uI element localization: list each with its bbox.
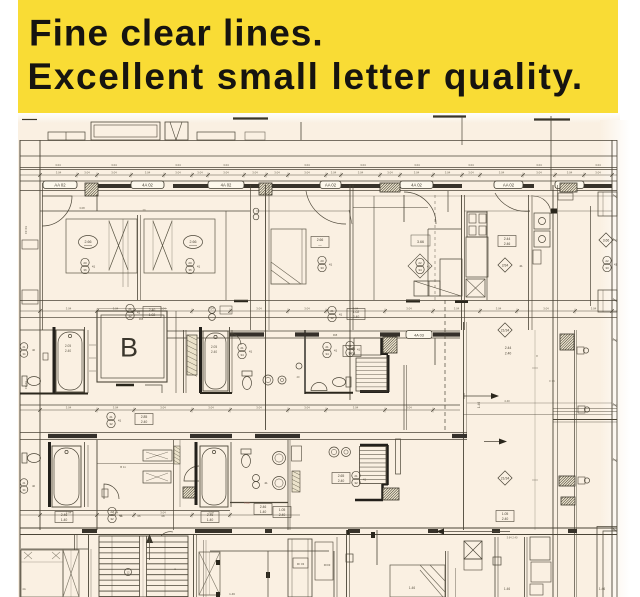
svg-text:12: 12 [126, 571, 130, 575]
svg-text:3.04: 3.04 [468, 163, 474, 167]
svg-text:1.40: 1.40 [260, 510, 267, 514]
svg-text:1.05: 1.05 [279, 508, 286, 512]
svg-text:1.40: 1.40 [207, 518, 214, 522]
svg-text:2.40: 2.40 [211, 350, 217, 354]
svg-text:41: 41 [264, 481, 268, 485]
svg-text:33: 33 [605, 266, 609, 270]
svg-text:1.46: 1.46 [599, 587, 605, 591]
svg-text:41: 41 [197, 265, 201, 269]
svg-text:41: 41 [118, 419, 122, 423]
svg-text:3.04: 3.04 [208, 406, 214, 410]
svg-text:21: 21 [325, 345, 329, 349]
svg-text:AA 02: AA 02 [325, 183, 337, 188]
svg-text:998: 998 [333, 333, 338, 337]
svg-text:3.04: 3.04 [274, 171, 280, 175]
svg-text:2.40: 2.40 [505, 352, 512, 356]
svg-text:3.04: 3.04 [468, 171, 474, 175]
svg-text:41: 41 [519, 264, 523, 268]
svg-text:41: 41 [92, 265, 96, 269]
svg-text:3.04: 3.04 [66, 511, 72, 515]
svg-text:FF03: FF03 [324, 563, 331, 567]
svg-text:3.04: 3.04 [591, 307, 597, 311]
svg-text:FF 03: FF 03 [24, 381, 28, 389]
svg-text:21/34: 21/34 [501, 476, 510, 480]
svg-text:3.04: 3.04 [252, 171, 258, 175]
svg-text:20: 20 [320, 259, 324, 263]
svg-text:40: 40 [32, 348, 36, 352]
svg-text:41: 41 [249, 350, 253, 354]
svg-text:Fine clear lines.: Fine clear lines. [29, 13, 324, 54]
svg-text:2.65: 2.65 [338, 474, 345, 478]
svg-text:1.05: 1.05 [502, 512, 509, 516]
svg-text:3.04: 3.04 [595, 171, 601, 175]
svg-text:3.04: 3.04 [223, 163, 229, 167]
svg-text:FF 03: FF 03 [24, 226, 28, 234]
svg-text:1.46: 1.46 [229, 592, 235, 596]
svg-text:FF 03: FF 03 [297, 562, 305, 566]
svg-text:3.04: 3.04 [111, 163, 117, 167]
svg-text:08: 08 [161, 514, 165, 518]
svg-text:3.04: 3.04 [414, 171, 420, 175]
svg-text:3.04: 3.04 [445, 171, 451, 175]
svg-text:2.44: 2.44 [504, 237, 511, 241]
svg-text:1.40: 1.40 [61, 518, 68, 522]
svg-text:34: 34 [418, 268, 422, 272]
svg-text:32: 32 [109, 422, 113, 426]
svg-text:3.04: 3.04 [113, 511, 119, 515]
svg-text:21: 21 [354, 474, 358, 478]
svg-text:2.05: 2.05 [211, 345, 217, 349]
svg-text:41: 41 [427, 265, 431, 269]
svg-text:21: 21 [330, 309, 334, 313]
svg-text:3.04: 3.04 [543, 307, 549, 311]
svg-text:3.04: 3.04 [66, 307, 72, 311]
svg-text:4A 02: 4A 02 [411, 183, 422, 188]
svg-text:2.46: 2.46 [260, 505, 267, 509]
svg-text:40: 40 [32, 484, 36, 488]
svg-text:34: 34 [240, 353, 244, 357]
svg-text:32: 32 [110, 517, 114, 521]
svg-text:Excellent small letter quality: Excellent small letter quality. [28, 56, 584, 97]
svg-text:2.05: 2.05 [65, 344, 71, 348]
svg-text:21: 21 [109, 415, 113, 419]
svg-text:32: 32 [348, 351, 352, 355]
svg-text:32: 32 [354, 481, 358, 485]
svg-text:41: 41 [357, 348, 361, 352]
svg-text:3.04: 3.04 [536, 163, 542, 167]
svg-text:998: 998 [139, 317, 144, 321]
svg-text:1.02: 1.02 [353, 310, 360, 314]
svg-text:3.04: 3.04 [304, 163, 310, 167]
svg-text:3.04: 3.04 [358, 171, 364, 175]
svg-text:3.04: 3.04 [223, 171, 229, 175]
svg-text:3.04: 3.04 [84, 171, 90, 175]
svg-text:32: 32 [330, 316, 334, 320]
svg-text:4.40: 4.40 [504, 399, 510, 403]
svg-text:3.04: 3.04 [145, 171, 151, 175]
svg-text:AA 02: AA 02 [503, 183, 515, 188]
svg-text:2.40: 2.40 [149, 308, 156, 312]
svg-text:3.04: 3.04 [304, 171, 310, 175]
svg-text:20: 20 [83, 261, 87, 265]
svg-text:22: 22 [418, 261, 422, 265]
svg-text:4A 02: 4A 02 [142, 183, 153, 188]
svg-text:41: 41 [334, 349, 338, 353]
svg-text:3.04: 3.04 [56, 171, 62, 175]
svg-text:3.08: 3.08 [79, 206, 85, 210]
svg-text:33: 33 [320, 266, 324, 270]
svg-text:1.46: 1.46 [504, 587, 510, 591]
svg-text:3.04: 3.04 [331, 171, 337, 175]
svg-text:3.64 2.40: 3.64 2.40 [507, 536, 518, 540]
svg-text:B 11: B 11 [120, 465, 126, 469]
svg-text:3.66: 3.66 [417, 240, 424, 244]
svg-text:F 04: F 04 [549, 379, 555, 383]
svg-text:3.04: 3.04 [406, 307, 412, 311]
svg-text:2.66: 2.66 [317, 238, 324, 242]
svg-text:3.04: 3.04 [197, 171, 203, 175]
svg-text:21: 21 [240, 346, 244, 350]
svg-text:2.66: 2.66 [190, 240, 197, 244]
svg-text:2.40: 2.40 [338, 479, 345, 483]
svg-text:41: 41 [329, 263, 333, 267]
svg-text:1.46: 1.46 [409, 586, 415, 590]
svg-text:2.85: 2.85 [141, 415, 148, 419]
svg-text:B: B [120, 333, 138, 363]
svg-text:2.40: 2.40 [141, 420, 148, 424]
svg-text:3.04: 3.04 [55, 163, 61, 167]
svg-text:4A 03: 4A 03 [414, 334, 424, 338]
svg-text:3.04: 3.04 [353, 406, 359, 410]
svg-text:3.04: 3.04 [113, 406, 119, 410]
svg-text:06: 06 [137, 514, 141, 518]
svg-text:3.04: 3.04 [496, 307, 502, 311]
svg-text:41: 41 [339, 313, 343, 317]
svg-text:3.04: 3.04 [66, 406, 72, 410]
svg-text:36: 36 [83, 268, 87, 272]
svg-text:3.04: 3.04 [175, 171, 181, 175]
svg-text:2/34: 2/34 [502, 263, 509, 267]
svg-text:3.04: 3.04 [304, 307, 310, 311]
svg-text:2.66: 2.66 [85, 240, 92, 244]
svg-text:3.04: 3.04 [256, 406, 262, 410]
svg-text:3.04: 3.04 [536, 171, 542, 175]
svg-text:3.04: 3.04 [414, 163, 420, 167]
svg-text:2.46: 2.46 [504, 242, 511, 246]
svg-text:3.04: 3.04 [406, 406, 412, 410]
svg-text:3.04: 3.04 [160, 511, 166, 515]
svg-text:21: 21 [348, 344, 352, 348]
svg-text:3.04: 3.04 [160, 406, 166, 410]
svg-text:3.04: 3.04 [256, 307, 262, 311]
svg-text:36: 36 [188, 268, 192, 272]
svg-text:4A 02: 4A 02 [221, 183, 232, 188]
svg-text:3.66: 3.66 [603, 238, 610, 242]
svg-text:36: 36 [119, 514, 123, 518]
svg-text:41: 41 [614, 263, 618, 267]
svg-text:3.04: 3.04 [304, 406, 310, 410]
svg-text:3.04: 3.04 [567, 171, 573, 175]
svg-text:22: 22 [605, 259, 609, 263]
svg-text:F03: F03 [244, 501, 250, 505]
svg-text:3.04: 3.04 [111, 171, 117, 175]
svg-text:2.40: 2.40 [65, 349, 71, 353]
svg-text:3.04: 3.04 [499, 171, 505, 175]
svg-text:2.44: 2.44 [505, 346, 512, 350]
svg-text:3.04: 3.04 [454, 307, 460, 311]
svg-text:20: 20 [188, 261, 192, 265]
svg-text:4A: 4A [22, 587, 26, 591]
svg-text:3.04: 3.04 [360, 163, 366, 167]
svg-text:3.04: 3.04 [175, 163, 181, 167]
svg-text:21/34: 21/34 [501, 328, 510, 332]
svg-text:2.40: 2.40 [502, 517, 509, 521]
svg-text:1.46: 1.46 [477, 402, 481, 408]
svg-text:34: 34 [325, 352, 329, 356]
svg-text:AA 02: AA 02 [54, 183, 66, 188]
svg-text:3.04: 3.04 [208, 511, 214, 515]
svg-text:3.04: 3.04 [595, 163, 601, 167]
svg-text:41: 41 [363, 478, 367, 482]
svg-text:3.04: 3.04 [387, 171, 393, 175]
